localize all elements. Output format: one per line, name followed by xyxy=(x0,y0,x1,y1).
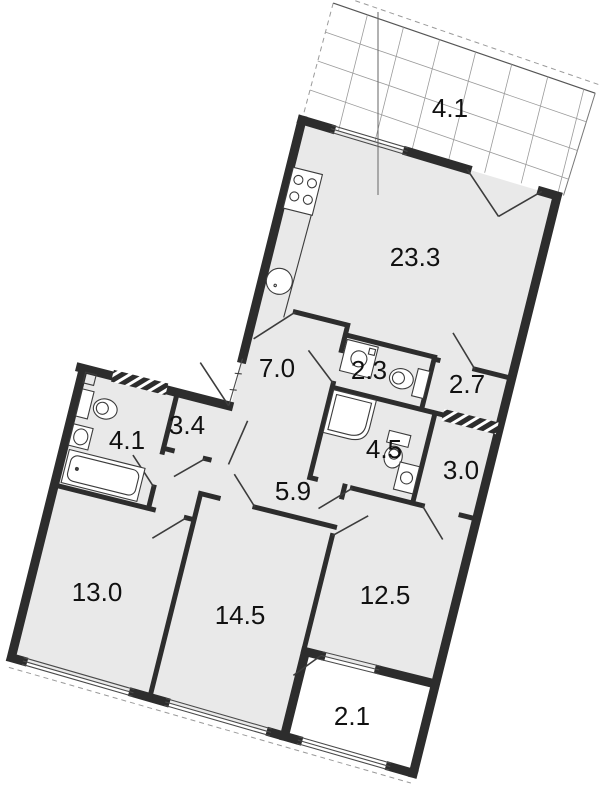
room-label-hall: 7.0 xyxy=(259,353,295,383)
floor-plan-svg: 4.1 23.3 7.0 2.3 2.7 3.4 4.1 4.5 3.0 5.9… xyxy=(0,0,600,787)
room-label-bedroom-3: 12.5 xyxy=(360,580,411,610)
room-label-corridor: 5.9 xyxy=(275,476,311,506)
plan-rotated-group xyxy=(2,0,600,787)
room-label-bedroom-2: 14.5 xyxy=(215,600,266,630)
room-label-wardrobe: 3.0 xyxy=(443,455,479,485)
room-label-wc: 2.3 xyxy=(351,355,387,385)
room-label-balcony: 4.1 xyxy=(432,93,468,123)
room-label-loggia: 2.1 xyxy=(334,701,370,731)
room-label-bathroom: 4.1 xyxy=(109,425,145,455)
room-label-bedroom-1: 13.0 xyxy=(72,577,123,607)
room-label-dressing: 3.4 xyxy=(169,410,205,440)
floor-plan-page: 4.1 23.3 7.0 2.3 2.7 3.4 4.1 4.5 3.0 5.9… xyxy=(0,0,600,787)
room-label-living-kitchen: 23.3 xyxy=(390,242,441,272)
room-label-shower-wc: 4.5 xyxy=(366,434,402,464)
room-label-pantry: 2.7 xyxy=(449,369,485,399)
